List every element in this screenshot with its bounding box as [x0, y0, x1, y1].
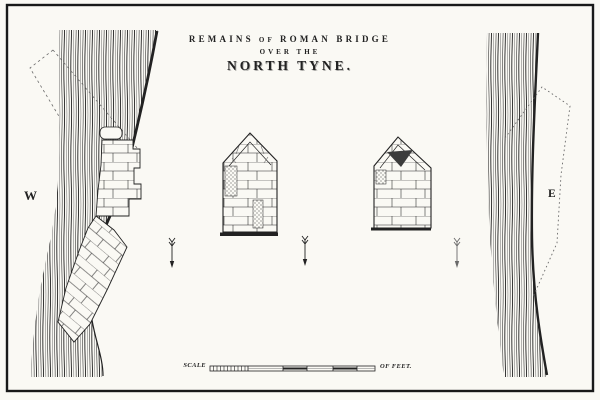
- title-part-of: OF: [259, 36, 275, 44]
- abutment-upper-course: [96, 140, 141, 216]
- pier-rubble-patch: [225, 166, 237, 196]
- pier-rubble-patch: [376, 170, 386, 184]
- scale-bar: [210, 366, 375, 371]
- engraving-page: REMAINSOFROMAN BRIDGE OVER THE NORTH TYN…: [0, 0, 600, 400]
- title-north-tyne: NORTH TYNE.: [140, 58, 440, 74]
- compass-label-east: E: [548, 188, 556, 200]
- bridge-pier-east: [371, 137, 431, 231]
- flow-arrow-icon: [169, 238, 175, 268]
- pier-rubble-patch: [253, 200, 263, 228]
- east-river-bank: [486, 33, 547, 377]
- title-part-remains: REMAINS: [189, 34, 254, 44]
- flow-arrow-icon: [454, 238, 460, 268]
- title-over-the: OVER THE: [140, 48, 440, 56]
- page-title: REMAINSOFROMAN BRIDGE: [140, 34, 440, 44]
- pier-base-line: [220, 233, 278, 237]
- bridge-pier-west: [220, 133, 278, 236]
- abutment-cap-stone: [100, 127, 122, 139]
- west-river-bank: [30, 30, 158, 377]
- flow-arrow-icon: [302, 236, 308, 266]
- title-block: REMAINSOFROMAN BRIDGE OVER THE NORTH TYN…: [140, 34, 440, 74]
- compass-label-west: W: [24, 188, 37, 204]
- pier-base-line: [371, 228, 431, 231]
- title-part-roman-bridge: ROMAN BRIDGE: [280, 34, 391, 44]
- scale-label: SCALE: [166, 362, 206, 369]
- scale-units-label: OF FEET.: [380, 363, 412, 370]
